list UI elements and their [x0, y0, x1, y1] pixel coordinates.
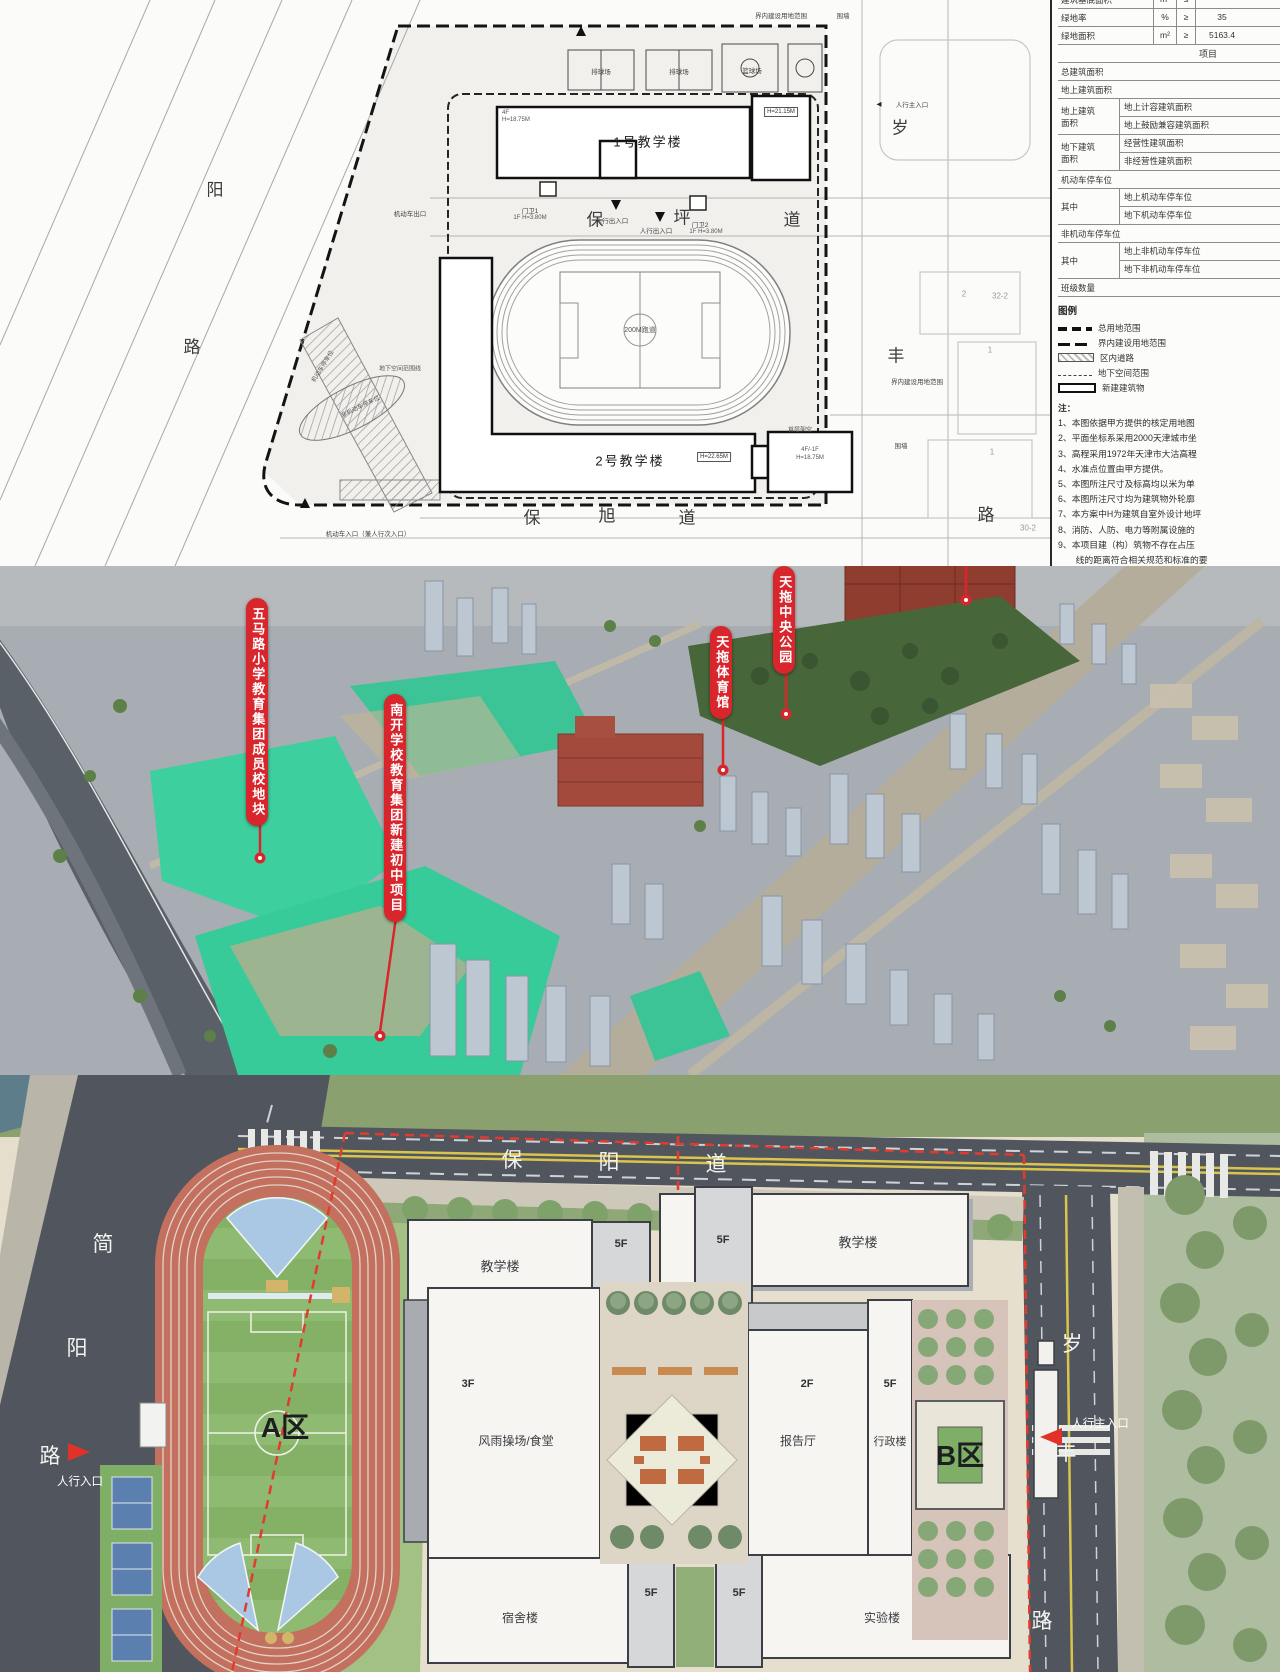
track-label: 200M跑道 — [624, 325, 656, 335]
road-suifeng-1: 岁 — [1062, 1333, 1083, 1356]
master-plan-section: 保 阳 道 简 阳 路 岁 丰 路 A区 B区 教学楼 教学楼 5F 5F 5F… — [0, 1075, 1280, 1672]
aerial-photo — [0, 566, 1280, 1075]
aerial-label-park: 天拖中央公园 — [773, 566, 795, 674]
ped-entrance-label: 人行入口 — [57, 1475, 103, 1488]
road-east-1: 岁 — [892, 114, 909, 139]
building1-label: 1号教学楼 — [613, 132, 682, 151]
teaching-building-1-label: 教学楼 — [480, 1259, 519, 1274]
road-baoxu-2: 旭 — [599, 502, 616, 527]
main-ped-entrance-label: 人行主入口 — [896, 99, 929, 109]
table-row: 非机动车停车位 — [1058, 225, 1280, 243]
gate2-label: 门卫2 — [692, 219, 709, 229]
inner-boundary-symbol — [1058, 343, 1092, 346]
wall-note-top: 围墙 — [837, 10, 850, 20]
teaching-building-2-label: 教学楼 — [838, 1235, 877, 1250]
neighbor-1b: 1 — [990, 448, 994, 457]
gym-label: 风雨操场/食堂 — [478, 1433, 553, 1448]
road-baoxu-3: 道 — [679, 504, 696, 529]
road-baoping-3: 道 — [784, 206, 801, 231]
floor-5f-b: 5F — [717, 1234, 730, 1246]
building1-height: H=18.75M — [502, 117, 530, 123]
road-suifeng-3: 路 — [1032, 1610, 1053, 1633]
underground-note: 地下空间范围线 — [379, 364, 421, 373]
floor-3f-gym: 3F — [462, 1378, 475, 1390]
notes-title: 注： — [1058, 401, 1280, 416]
aerial-photo-section: 五马路小学教育集团成员校地块 南开学校教育集团新建初中项目 天拖体育馆 天拖中央… — [0, 566, 1280, 1075]
admin-label: 行政楼 — [874, 1434, 907, 1448]
new-building-symbol — [1058, 383, 1096, 393]
legend-item: 区内道路1— — [1058, 350, 1280, 365]
note-line: 2、平面坐标系采用2000天津城市坐 — [1058, 431, 1280, 446]
running-track — [155, 1145, 400, 1672]
road-baoping-2: 坪 — [674, 204, 691, 229]
inner-boundary-note-right: 界内建设用地范围 — [891, 376, 943, 386]
table-group: 地下建筑面积 经营性建筑面积非经营性建筑面积 — [1058, 135, 1280, 171]
road-baoyang-2: 阳 — [599, 1151, 620, 1174]
sand-pit — [266, 1280, 288, 1292]
building2-wing-height: H=18.75M — [796, 455, 824, 461]
underground-symbol — [1058, 375, 1092, 376]
notes-block: 注： 1、本图依据甲方提供的核定用地图 2、平面坐标系采用2000天津城市坐 3… — [1058, 401, 1280, 566]
aerial-label-wumalu: 五马路小学教育集团成员校地块 — [246, 598, 268, 826]
screenshot-root: 1号教学楼 4F H=18.75M H=21.15M 2号教学楼 H=22.65… — [0, 0, 1280, 1672]
dorm-label: 宿舍楼 — [502, 1610, 538, 1625]
legend-item: 界内建设用地范围▲ — [1058, 335, 1280, 350]
zone-b-label: B区 — [936, 1440, 984, 1471]
building2-wing: 4F/-1F — [801, 447, 819, 453]
data-panel: 建筑基底面积m²≤ 绿地率%≥35 绿地面积m²≥5163.4 项目 总建筑面积… — [1050, 0, 1280, 566]
note-line: 8、消防、人防、电力等附属设施的 — [1058, 523, 1280, 538]
parking-row — [340, 480, 440, 500]
road-southeast: 路 — [978, 501, 995, 526]
runway-strip — [208, 1293, 332, 1299]
road-jianyang-3: 路 — [40, 1445, 61, 1468]
floor-5f-admin: 5F — [884, 1378, 897, 1390]
aerial-label-stadium: 天拖体育馆 — [710, 626, 732, 719]
note-line: 1、本图依据甲方提供的核定用地图 — [1058, 416, 1280, 431]
table-group: 其中 地上非机动车停车位地下非机动车停车位 — [1058, 243, 1280, 279]
legend-item: 总用地范围▲ — [1058, 320, 1280, 335]
table-row: 班级数量 — [1058, 279, 1280, 297]
road-jianyang-1: 简 — [93, 1233, 114, 1256]
gate1-label: 门卫1 — [522, 205, 539, 215]
boundary-symbol — [1058, 327, 1092, 331]
table-row: 绿地率%≥35 — [1058, 9, 1280, 27]
building2-label: 2号教学楼 — [595, 451, 664, 470]
table-row: 绿地面积m²≥5163.4 — [1058, 27, 1280, 45]
lab-label: 实验楼 — [864, 1610, 900, 1625]
central-plaza — [600, 1282, 748, 1564]
table-row: 建筑基底面积m²≤ — [1058, 0, 1280, 9]
building1-wing-height: H=21.15M — [764, 107, 798, 117]
note-line: 6、本图所注尺寸均为建筑物外轮廓 — [1058, 492, 1280, 507]
table-group: 其中 地上机动车停车位地下机动车停车位 — [1058, 189, 1280, 225]
master-plan-render: 保 阳 道 简 阳 路 岁 丰 路 A区 B区 教学楼 教学楼 5F 5F 5F… — [0, 1075, 1280, 1672]
note-line: 7、本方案中H为建筑自室外设计地坪 — [1058, 507, 1280, 522]
road-west-1: 阳 — [207, 176, 224, 201]
wall-note-right: 围墙 — [895, 440, 908, 450]
volleyball-label-1: 排球场 — [591, 66, 611, 76]
road-east-2: 丰 — [888, 342, 905, 367]
stilt-label: 首层架空 — [788, 425, 812, 434]
floor-2f-hall: 2F — [801, 1378, 814, 1390]
table-row: 机动车停车位 — [1058, 171, 1280, 189]
main-ped-arrow-icon: ◀ — [877, 100, 882, 108]
site-plan-section: 1号教学楼 4F H=18.75M H=21.15M 2号教学楼 H=22.65… — [0, 0, 1280, 566]
road-baoyang-1: 保 — [502, 1149, 523, 1172]
volleyball-label-2: 排球场 — [669, 66, 689, 76]
road-symbol — [1058, 353, 1094, 362]
road-baoyang-3: 道 — [706, 1153, 727, 1176]
vehicle-exit-label: 机动车出口 — [394, 208, 427, 218]
site-plan-drawing — [0, 0, 1050, 566]
hall-label: 报告厅 — [780, 1433, 816, 1448]
gate2-height: 1F H=3.80M — [689, 229, 722, 235]
road-suifeng-2: 丰 — [1056, 1442, 1077, 1465]
sand-pit-2 — [332, 1287, 350, 1303]
road-west-2: 路 — [184, 333, 201, 358]
inner-boundary-note-top: 界内建设用地范围 — [755, 10, 807, 20]
floor-5f-c: 5F — [645, 1587, 658, 1599]
ped-entrance-2: 人行出入口 — [640, 225, 673, 235]
ped-entrance-1: 人行出入口 — [596, 215, 629, 225]
tennis-courts — [100, 1465, 162, 1672]
table-group: 地上建筑面积 地上计容建筑面积地上鼓励兼容建筑面积 — [1058, 99, 1280, 135]
legend-item: 新建建筑物—→ — [1058, 380, 1280, 395]
court-green — [676, 1567, 714, 1667]
note-line: 3、高程采用1972年天津市大沽高程 — [1058, 447, 1280, 462]
table-row: 总建筑面积 — [1058, 63, 1280, 81]
neighbor-30-2: 30-2 — [1020, 524, 1036, 533]
vehicle-entrance-label: 机动车入口（兼人行次入口） — [326, 528, 411, 538]
building1-floors: 4F — [502, 110, 509, 116]
aerial-label-nankai: 南开学校教育集团新建初中项目 — [384, 694, 406, 922]
note-line: 9、本项目建（构）筑物不存在占压 — [1058, 538, 1280, 553]
note-line: 4、水准点位置由甲方提供。 — [1058, 462, 1280, 477]
neighbor-1a: 1 — [988, 346, 992, 355]
table-section-header: 项目 — [1058, 45, 1280, 63]
zone-a-label: A区 — [261, 1412, 309, 1443]
note-line: 5、本图所注尺寸及标高均以米为单 — [1058, 477, 1280, 492]
neighbor-2: 2 — [962, 290, 966, 299]
road-jianyang-2: 阳 — [67, 1337, 88, 1360]
basketball-label: 篮球场 — [742, 65, 762, 75]
floor-5f-d: 5F — [733, 1587, 746, 1599]
table-row: 地上建筑面积 — [1058, 81, 1280, 99]
road-baoxu-1: 保 — [524, 504, 541, 529]
floor-5f-a: 5F — [615, 1238, 628, 1250]
neighbor-32-2: 32-2 — [992, 292, 1008, 301]
gate1-height: 1F H=3.80M — [513, 215, 546, 221]
note-line: 线的距离符合相关规范和标准的要 — [1058, 553, 1280, 566]
building2-height: H=22.65M — [697, 452, 731, 462]
ped-main-entrance-label: 人行主入口 — [1071, 1417, 1129, 1430]
legend-title: 图例 — [1058, 303, 1280, 317]
legend-item: 地下空间范围 — [1058, 365, 1280, 380]
equipment-hut — [140, 1403, 166, 1447]
